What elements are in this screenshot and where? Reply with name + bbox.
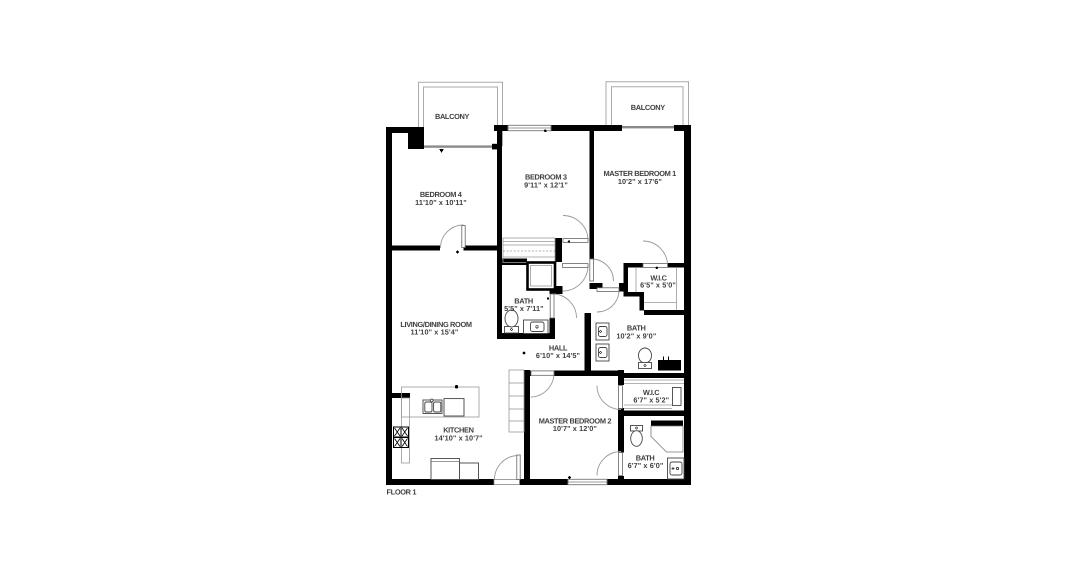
svg-text:6'7" x 5'2": 6'7" x 5'2" bbox=[633, 395, 669, 404]
svg-text:10'7" x 12'0": 10'7" x 12'0" bbox=[553, 424, 597, 433]
svg-text:FLOOR 1: FLOOR 1 bbox=[387, 488, 417, 497]
svg-text:10'2" x 9'0": 10'2" x 9'0" bbox=[616, 331, 656, 340]
svg-text:11'10" x 10'11": 11'10" x 10'11" bbox=[415, 198, 467, 207]
svg-text:5'5" x 7'11": 5'5" x 7'11" bbox=[504, 304, 544, 313]
svg-text:9'11" x 12'1": 9'11" x 12'1" bbox=[524, 180, 568, 189]
svg-text:10'2" x 17'6": 10'2" x 17'6" bbox=[618, 177, 662, 186]
svg-text:11'10" x 15'4": 11'10" x 15'4" bbox=[411, 328, 459, 337]
svg-text:BALCONY: BALCONY bbox=[435, 112, 470, 121]
svg-text:6'7" x 6'0": 6'7" x 6'0" bbox=[628, 461, 664, 470]
svg-text:BALCONY: BALCONY bbox=[631, 103, 666, 112]
svg-text:6'10" x 14'5": 6'10" x 14'5" bbox=[536, 351, 580, 360]
svg-text:14'10" x 10'7": 14'10" x 10'7" bbox=[434, 434, 482, 443]
svg-text:6'5" x 5'0": 6'5" x 5'0" bbox=[640, 281, 676, 290]
